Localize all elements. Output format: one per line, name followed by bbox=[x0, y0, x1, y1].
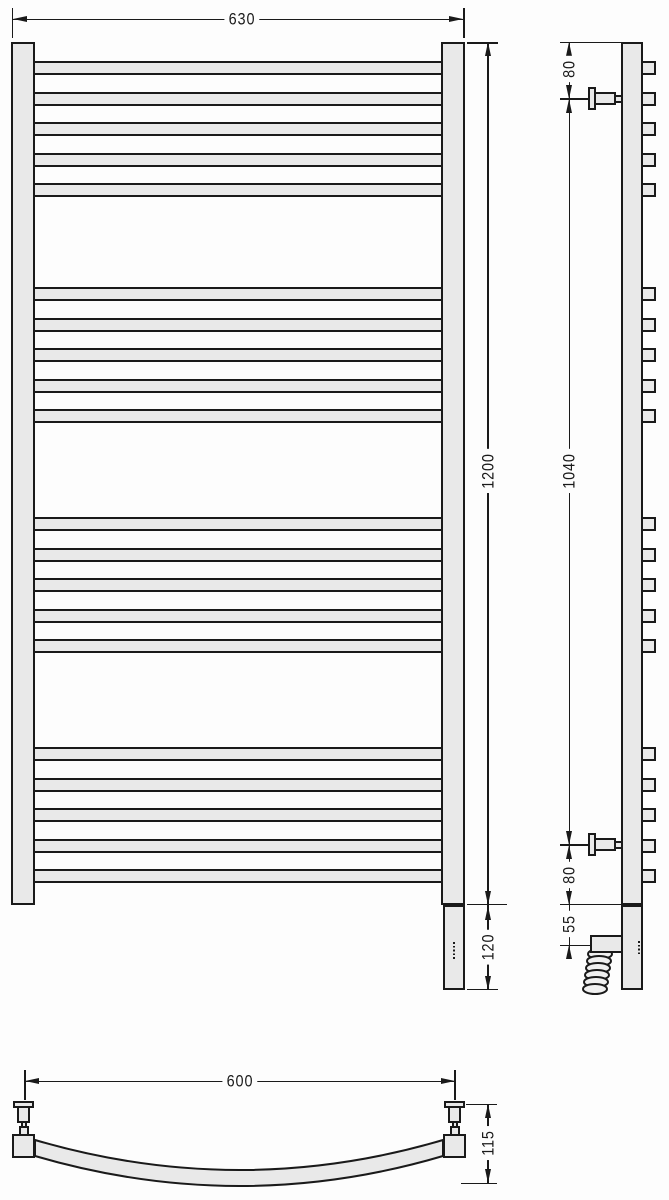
dim-arrow bbox=[449, 16, 463, 22]
spiral-cable-icon bbox=[581, 948, 617, 996]
towel-rail-technical-drawing: 630 1200 120 80 1040 80 55 600 115 bbox=[0, 0, 669, 1200]
dim-front-height: 1200 bbox=[477, 449, 498, 493]
stub bbox=[641, 153, 656, 167]
ext-line bbox=[463, 8, 465, 38]
ext-line bbox=[466, 1104, 497, 1106]
rung bbox=[35, 808, 443, 822]
stub bbox=[641, 778, 656, 792]
rung bbox=[35, 548, 443, 562]
dim-arrow bbox=[25, 1078, 39, 1084]
stub bbox=[641, 348, 656, 362]
dim-arrow bbox=[485, 42, 491, 56]
rung bbox=[35, 869, 443, 883]
stub bbox=[641, 92, 656, 106]
ext-line bbox=[560, 844, 588, 846]
dim-arrow bbox=[566, 85, 572, 99]
stub bbox=[641, 548, 656, 562]
dim-side-bottom-offset: 80 bbox=[559, 862, 580, 888]
rung bbox=[35, 839, 443, 853]
ext-line bbox=[560, 98, 588, 100]
stub bbox=[641, 747, 656, 761]
bottom-union-body bbox=[594, 838, 616, 851]
ext-line bbox=[467, 989, 498, 991]
ext-line bbox=[467, 42, 498, 44]
stub bbox=[641, 808, 656, 822]
dim-arrow bbox=[566, 42, 572, 56]
vent-dots-icon bbox=[453, 942, 455, 960]
stub bbox=[641, 609, 656, 623]
rung bbox=[35, 92, 443, 106]
dim-arrow bbox=[566, 831, 572, 845]
rung bbox=[35, 153, 443, 167]
ext-line bbox=[560, 945, 590, 947]
dim-arrow bbox=[485, 891, 491, 905]
dim-side-heater-offset: 55 bbox=[559, 911, 580, 937]
stub bbox=[641, 578, 656, 592]
rung bbox=[35, 379, 443, 393]
rung bbox=[35, 578, 443, 592]
dim-arrow bbox=[485, 1169, 491, 1183]
left-post bbox=[11, 42, 35, 905]
right-post bbox=[441, 42, 465, 905]
stub bbox=[641, 318, 656, 332]
electric-heater-box bbox=[590, 935, 623, 953]
stub bbox=[641, 183, 656, 197]
dim-side-span: 1040 bbox=[559, 449, 580, 493]
dim-side-top-offset: 80 bbox=[559, 56, 580, 82]
rung bbox=[35, 639, 443, 653]
stub bbox=[641, 869, 656, 883]
rung bbox=[35, 287, 443, 301]
stub bbox=[641, 379, 656, 393]
dim-arrow bbox=[485, 906, 491, 920]
top-union-body bbox=[594, 92, 616, 105]
dim-arrow bbox=[441, 1078, 455, 1084]
dim-arrow bbox=[566, 891, 572, 905]
dim-arrow bbox=[566, 845, 572, 859]
ext-line bbox=[24, 1070, 26, 1100]
vent-dots-icon bbox=[638, 941, 640, 955]
dim-front-width: 630 bbox=[224, 9, 259, 30]
rung bbox=[35, 517, 443, 531]
stub bbox=[641, 517, 656, 531]
dim-arrow bbox=[485, 1104, 491, 1118]
ext-line bbox=[12, 8, 14, 38]
rung bbox=[35, 61, 443, 75]
dim-arrow bbox=[13, 16, 27, 22]
dim-plan-spacing: 600 bbox=[222, 1071, 257, 1092]
ext-line bbox=[461, 1183, 497, 1185]
stub bbox=[641, 122, 656, 136]
dim-plan-depth: 115 bbox=[477, 1126, 498, 1160]
stub bbox=[641, 61, 656, 75]
dim-arrow bbox=[566, 99, 572, 113]
rung bbox=[35, 348, 443, 362]
rung bbox=[35, 122, 443, 136]
stub bbox=[641, 287, 656, 301]
rung bbox=[35, 609, 443, 623]
stub bbox=[641, 409, 656, 423]
ext-line bbox=[454, 1070, 456, 1100]
dim-line bbox=[569, 42, 571, 959]
rung bbox=[35, 183, 443, 197]
rung bbox=[35, 747, 443, 761]
curved-rung bbox=[30, 1132, 450, 1194]
dim-arrow bbox=[566, 945, 572, 959]
rung bbox=[35, 409, 443, 423]
left-post-section bbox=[12, 1134, 35, 1158]
side-post bbox=[621, 42, 643, 905]
stub bbox=[641, 839, 656, 853]
rung bbox=[35, 778, 443, 792]
dim-front-bottom-section: 120 bbox=[477, 929, 498, 964]
stub bbox=[641, 639, 656, 653]
rung bbox=[35, 318, 443, 332]
right-post-section bbox=[443, 1134, 466, 1158]
